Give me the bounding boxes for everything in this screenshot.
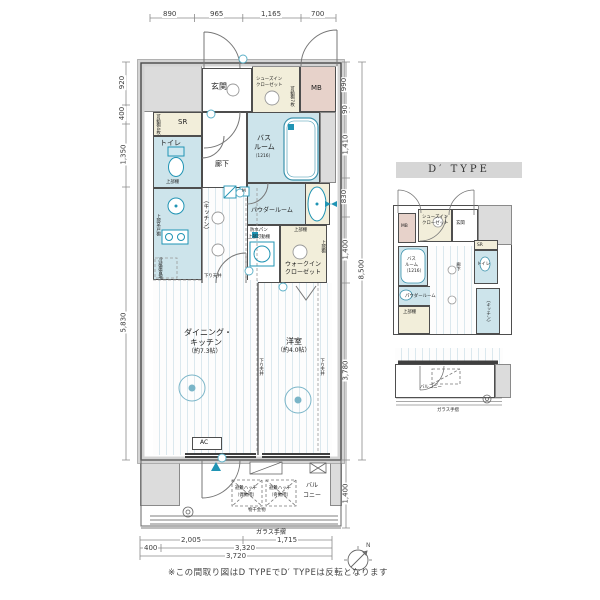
label-fridge: 冷蔵庫置場 xyxy=(158,257,163,279)
label-west-room: 洋室 xyxy=(286,337,302,346)
label-bath2: ルーム xyxy=(254,143,275,151)
label-ac: AC xyxy=(200,440,208,447)
mini-label-balcony: バルコニー xyxy=(420,384,442,389)
mini-label-glass: ガラス手摺 xyxy=(437,407,459,412)
label-sic-line2: クローゼット xyxy=(256,82,282,87)
mini-balcony xyxy=(395,364,495,398)
label-sic-line1: シューズイン xyxy=(256,76,282,81)
exterior-wall-block-balcony-right xyxy=(330,460,342,506)
label-wic-top-shelf: 上部棚 xyxy=(294,227,307,232)
mini-plan-header: D′ TYPE xyxy=(396,162,522,178)
label-dropped-ceiling-2: 下り天井 xyxy=(320,358,325,376)
dim-left-5830: 5,830 xyxy=(121,311,128,333)
mini-label-hall: 廊下 xyxy=(456,262,461,271)
label-hatch-odd-2: （奇数階） xyxy=(269,492,291,497)
label-mb: MB xyxy=(311,84,322,92)
label-kitchen-zone: （キッチン） xyxy=(201,197,208,233)
dim-top-1165: 1,165 xyxy=(260,11,282,18)
label-dk-line3: （約7.3帖） xyxy=(188,349,222,356)
mini-label-sic2: クローゼット xyxy=(422,220,448,225)
mini-hall-floor xyxy=(430,246,474,334)
label-balcony-line1: バル xyxy=(306,483,318,490)
dim-right-1410: 1,410 xyxy=(343,133,350,155)
room-hallway xyxy=(202,112,247,188)
mini-label-mb: MB xyxy=(401,223,408,228)
label-dropped-ceiling-1: 下り天井 xyxy=(259,358,264,376)
mini-label-shelf: 上部棚 xyxy=(403,309,416,314)
dim-balcony-1400: 1,400 xyxy=(343,482,350,504)
label-west-size: （約4.0帖） xyxy=(277,348,311,355)
label-pan: 防水パン xyxy=(250,227,268,232)
compass-n-label: N xyxy=(366,543,371,550)
dim-left-1350: 1,350 xyxy=(121,143,128,165)
basin-cabinet xyxy=(305,183,330,225)
dim-right-990: 990 xyxy=(341,77,348,92)
label-dropped-ceiling-3: 下り天井 xyxy=(204,273,222,278)
mini-genkan xyxy=(452,209,478,242)
label-powder: パウダールーム xyxy=(251,208,293,215)
label-m-box: M xyxy=(242,188,246,193)
label-toilet-shelf: 上部棚 xyxy=(166,179,179,184)
mini-label-powder: パウダールーム xyxy=(405,293,436,298)
dim-right-1400: 1,400 xyxy=(343,238,350,260)
mini-toilet xyxy=(474,250,498,284)
room-dining-kitchen xyxy=(153,280,258,455)
mini-label-kitchen: （キッチン） xyxy=(486,298,491,324)
mini-label-bath1: バス xyxy=(407,256,416,261)
dim-bottom-1715: 1,715 xyxy=(276,537,298,544)
label-hatch-even-1: 避難ハッチ xyxy=(235,485,257,490)
label-bath1: バス xyxy=(257,134,271,142)
dim-right-830: 830 xyxy=(341,189,348,204)
label-sr-shelf: 可動棚4枚 xyxy=(156,114,161,134)
label-toilet: トイレ xyxy=(160,139,181,147)
label-wic-line2: クローゼット xyxy=(285,270,321,277)
exterior-wall-block-balcony-left xyxy=(140,460,180,506)
mini-wall-block xyxy=(478,205,512,245)
footnote: ※この間取り図はD TYPEでD′ TYPEは反転となります xyxy=(168,566,388,578)
label-wic-side-shelf: 上部棚 xyxy=(321,240,326,253)
label-sr: SR xyxy=(178,118,187,126)
floor-plan-page: 玄関 シューズイン クローゼット 可動棚7枚 MB 可動棚4枚 SR トイレ 上… xyxy=(0,0,600,600)
mini-label-sr: SR xyxy=(477,242,483,247)
pipe-space xyxy=(320,112,336,183)
label-hatch-even-2: （偶数階） xyxy=(235,492,257,497)
label-cupboard: 上部吊戸棚 xyxy=(156,214,161,236)
dim-left-400: 400 xyxy=(119,106,126,121)
label-balcony-line2: コニー xyxy=(303,493,321,500)
label-hall: 廊下 xyxy=(215,160,229,168)
mini-label-bath2: ルーム xyxy=(405,262,418,267)
dim-bottom-400: 400 xyxy=(143,545,158,552)
dim-right-3780: 3,780 xyxy=(343,359,350,381)
label-sic-shelf: 可動棚7枚 xyxy=(290,86,295,106)
dim-right-90: 90 xyxy=(342,104,349,115)
mini-label-toilet: トイレ xyxy=(477,261,490,266)
dim-top-890: 890 xyxy=(162,11,177,18)
label-pan-shelf: 上部可動棚 xyxy=(248,234,270,239)
dim-right-total-8500: 8,500 xyxy=(359,258,366,280)
mini-label-bath3: （1216） xyxy=(404,268,424,273)
mini-balcony-wall xyxy=(495,364,511,398)
dim-bottom-3720: 3,720 xyxy=(225,553,247,560)
mini-label-genkan: 玄関 xyxy=(456,220,465,225)
exterior-wall-block-topleft xyxy=(140,62,202,112)
mini-label-sic1: シューズイン xyxy=(422,214,448,219)
label-genkan: 玄関 xyxy=(211,82,227,91)
label-dk-line2: キッチン xyxy=(190,338,222,347)
label-laundry-pole: 物干金物 xyxy=(248,507,266,512)
dim-bottom-3320: 3,320 xyxy=(234,545,256,552)
dim-top-965: 965 xyxy=(209,11,224,18)
label-wic-line1: ウォークイン xyxy=(285,262,321,269)
mini-room-band xyxy=(395,348,503,364)
dim-bottom-2005: 2,005 xyxy=(180,537,202,544)
dim-left-920: 920 xyxy=(119,75,126,90)
room-genkan xyxy=(202,68,252,112)
dim-top-700: 700 xyxy=(310,11,325,18)
label-bath3: （1216） xyxy=(253,153,273,158)
label-dk-line1: ダイニング・ xyxy=(184,328,232,337)
label-hatch-odd-1: 避難ハッチ xyxy=(269,485,291,490)
